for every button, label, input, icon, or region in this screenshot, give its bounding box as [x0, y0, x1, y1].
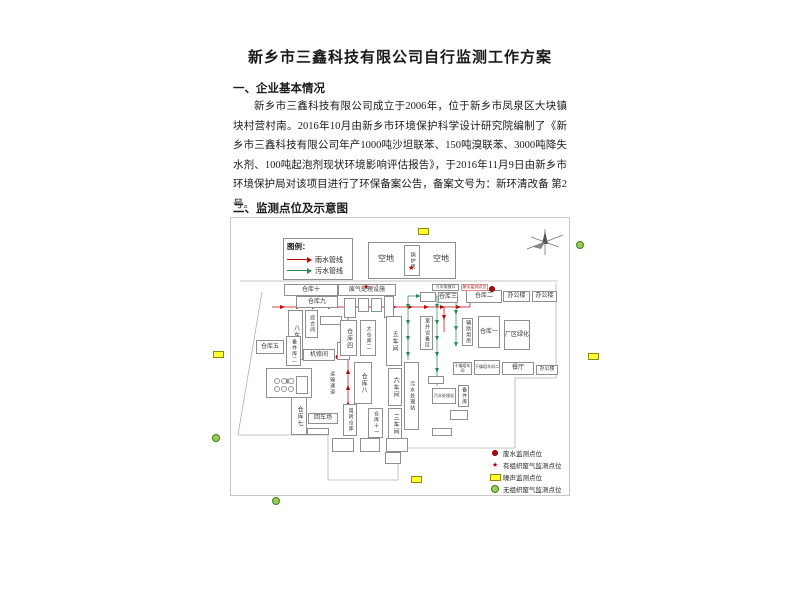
- building-仓库七: 仓库七: [291, 397, 307, 435]
- section-heading-2: 二、监测点位及示意图: [233, 200, 348, 216]
- rainwater-pipeline-legend-item: 雨水管线: [287, 254, 349, 265]
- fugitive-gas-point-icon: [489, 485, 501, 493]
- wastewater-monitoring-point: [489, 286, 495, 292]
- building-box: [385, 452, 401, 464]
- fugitive-gas-monitoring-point: [212, 434, 220, 442]
- building-box: [320, 316, 342, 325]
- building-空地: 空地: [371, 252, 401, 266]
- wastewater-point-legend-item: 废水监测点位: [489, 447, 581, 459]
- building-仓库二: 仓库二: [466, 290, 502, 303]
- building-备件库: 备件库: [458, 385, 469, 407]
- stack-gas-point-legend-item: ★ 有组织废气监测点位: [489, 459, 581, 471]
- stack-gas-monitoring-point: ★: [363, 284, 369, 291]
- building-大仓库二: 大仓库二: [360, 320, 376, 356]
- wastewater-point-icon: [489, 450, 501, 456]
- noise-monitoring-point: [213, 351, 224, 358]
- building-周转仓库: 周转仓库: [343, 404, 357, 436]
- building-污水处理站: 污水处理站: [404, 362, 419, 430]
- building-仓库一: 仓库一: [478, 316, 500, 348]
- building-办公楼: 办公楼: [532, 291, 557, 302]
- building-仓库八: 仓库八: [354, 362, 372, 404]
- storage-tank-symbol: [274, 378, 280, 384]
- stack-gas-point-icon: ★: [489, 462, 501, 469]
- storage-tank-symbol: [288, 386, 294, 392]
- noise-monitoring-point: [411, 476, 422, 483]
- rainwater-pipeline-label: 雨水管线: [315, 255, 343, 265]
- building-五车间: 五车间: [386, 316, 402, 366]
- building-餐厅: 餐厅: [502, 362, 534, 375]
- building-空地: 空地: [428, 252, 454, 266]
- building-污水处理站: 污水处理站: [432, 388, 456, 404]
- building-box: [450, 410, 468, 420]
- fugitive-gas-monitoring-point: [576, 241, 584, 249]
- monitoring-point-legend: 废水监测点位 ★ 有组织废气监测点位 噪声监测点位 无组织废气监测点位: [489, 447, 581, 495]
- wastewater-point-label: 废水监测点位: [503, 448, 542, 458]
- building-box: [358, 298, 369, 312]
- building-box: [386, 438, 408, 452]
- noise-point-legend-item: 噪声监测点位: [489, 471, 581, 483]
- document-page: { "doc": { "title": "新乡市三鑫科技有限公司自行监测工作方案…: [0, 0, 800, 600]
- noise-monitoring-point: [588, 353, 599, 360]
- building-box: [296, 376, 308, 394]
- building-三车间: 三车间: [388, 408, 402, 440]
- building-厂区绿化: 厂区绿化: [504, 320, 530, 350]
- building-备件库二: 备件库二: [286, 336, 301, 366]
- fugitive-gas-point-legend-item: 无组织废气监测点位: [489, 483, 581, 495]
- noise-point-icon: [489, 474, 501, 481]
- storage-tank-symbol: [281, 386, 287, 392]
- storage-tank-symbol: [288, 378, 294, 384]
- building-box: [307, 428, 329, 435]
- building-box: [432, 428, 452, 436]
- building-仓库三: 仓库三: [438, 292, 458, 303]
- building-box: [344, 298, 356, 318]
- fugitive-gas-monitoring-point: [272, 497, 280, 505]
- pipeline-legend-title: 图例：: [287, 241, 349, 252]
- building-仓库四: 仓库四: [340, 320, 357, 356]
- company-intro-paragraph: 新乡市三鑫科技有限公司成立于2006年，位于新乡市凤泉区大块镇块村营村南。201…: [233, 97, 567, 214]
- noise-monitoring-point: [418, 228, 429, 235]
- building-六车间: 六车间: [388, 368, 402, 406]
- document-title: 新乡市三鑫科技有限公司自行监测工作方案: [0, 46, 800, 67]
- sewage-pipeline-label: 污水管线: [315, 266, 343, 276]
- building-污水排放口: 污水排放口: [432, 284, 459, 291]
- building-机修间: 机修间: [303, 349, 335, 361]
- building-box: [384, 296, 394, 318]
- building-仓库十: 仓库十: [284, 284, 338, 296]
- section-heading-1: 一、企业基本情况: [233, 80, 325, 96]
- storage-tank-symbol: [281, 378, 287, 384]
- fugitive-gas-point-label: 无组织废气监测点位: [503, 484, 562, 494]
- building-干燥塔车间二: 干燥塔车间二: [474, 360, 500, 375]
- building-box: [428, 376, 444, 384]
- building-室外设备区: 室外设备区: [420, 316, 433, 350]
- building-仓库十一: 仓库十一: [368, 408, 383, 438]
- building-box: [420, 292, 436, 302]
- building-干燥塔车间: 干燥塔车间: [453, 362, 472, 375]
- building-回车场: 回车场: [308, 413, 338, 424]
- building-办公楼: 办公楼: [536, 365, 558, 375]
- building-运输通道: 运输通道: [327, 364, 336, 402]
- building-综合间: 综合间: [305, 310, 318, 338]
- sewage-line-icon: [287, 270, 311, 271]
- sewage-pipeline-legend-item: 污水管线: [287, 265, 349, 276]
- storage-tank-symbol: [274, 386, 280, 392]
- building-仓库九: 仓库九: [296, 296, 338, 308]
- building-box: [332, 438, 354, 452]
- stack-gas-monitoring-point: ★: [408, 265, 414, 272]
- building-box: [371, 298, 382, 312]
- pipeline-legend: 图例： 雨水管线 污水管线: [283, 238, 353, 280]
- building-废水监测点位: 废水监测点位: [461, 284, 488, 291]
- building-box: [360, 438, 380, 452]
- rainwater-line-icon: [287, 259, 311, 260]
- noise-point-label: 噪声监测点位: [503, 472, 542, 482]
- stack-gas-point-label: 有组织废气监测点位: [503, 460, 562, 470]
- building-辅助用房: 辅助用房: [462, 318, 473, 346]
- building-仓库五: 仓库五: [256, 340, 284, 354]
- building-办公楼: 办公楼: [503, 291, 530, 302]
